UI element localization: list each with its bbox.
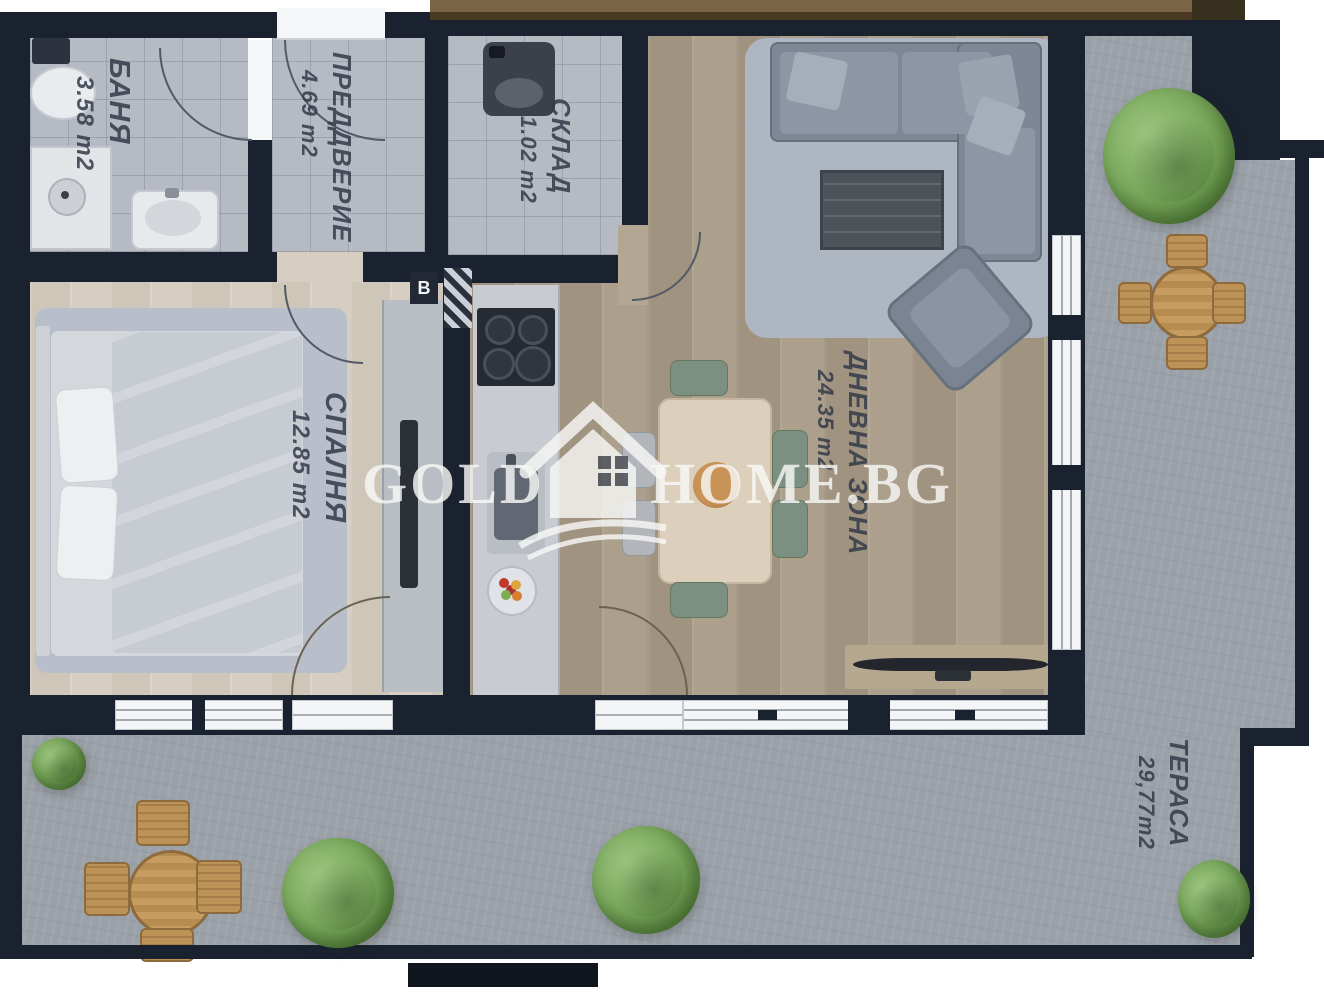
door-arc: [285, 285, 363, 363]
room-label-storage: СКЛАД 1.02 m2: [515, 98, 576, 204]
room-area: 1.02 m2: [515, 116, 541, 204]
tree-icon: [592, 826, 700, 934]
watermark-text-right: HOME.BG: [650, 450, 953, 517]
room-area: 4.69 m2: [296, 70, 322, 242]
room-label-bedroom: СПАЛНЯ 12.85 m2: [286, 392, 351, 523]
room-label-bathroom: БАНЯ 3.58 m2: [70, 58, 135, 171]
room-name: ПРЕДДВЕРИЕ: [326, 52, 357, 242]
bush-icon: [1178, 860, 1250, 938]
bush-icon: [32, 738, 86, 790]
room-area: 3.58 m2: [70, 76, 98, 171]
room-name: СПАЛНЯ: [318, 392, 351, 523]
room-area: 29,77m2: [1133, 756, 1159, 850]
door-arc: [160, 48, 252, 140]
room-label-terrace: ТЕРАСА 29,77m2: [1133, 738, 1194, 850]
tree-icon: [282, 838, 394, 948]
room-label-vestibule: ПРЕДДВЕРИЕ 4.69 m2: [296, 52, 357, 242]
house-logo-icon: [518, 396, 668, 561]
tree-icon: [1103, 88, 1235, 224]
door-arc: [632, 232, 700, 300]
door-arc: [599, 607, 687, 695]
room-area: 12.85 m2: [286, 410, 314, 523]
floor-plan: В: [0, 0, 1324, 1000]
door-arc: [292, 597, 390, 695]
room-name: ТЕРАСА: [1163, 738, 1194, 850]
room-name: БАНЯ: [102, 58, 135, 171]
room-name: СКЛАД: [545, 98, 576, 204]
